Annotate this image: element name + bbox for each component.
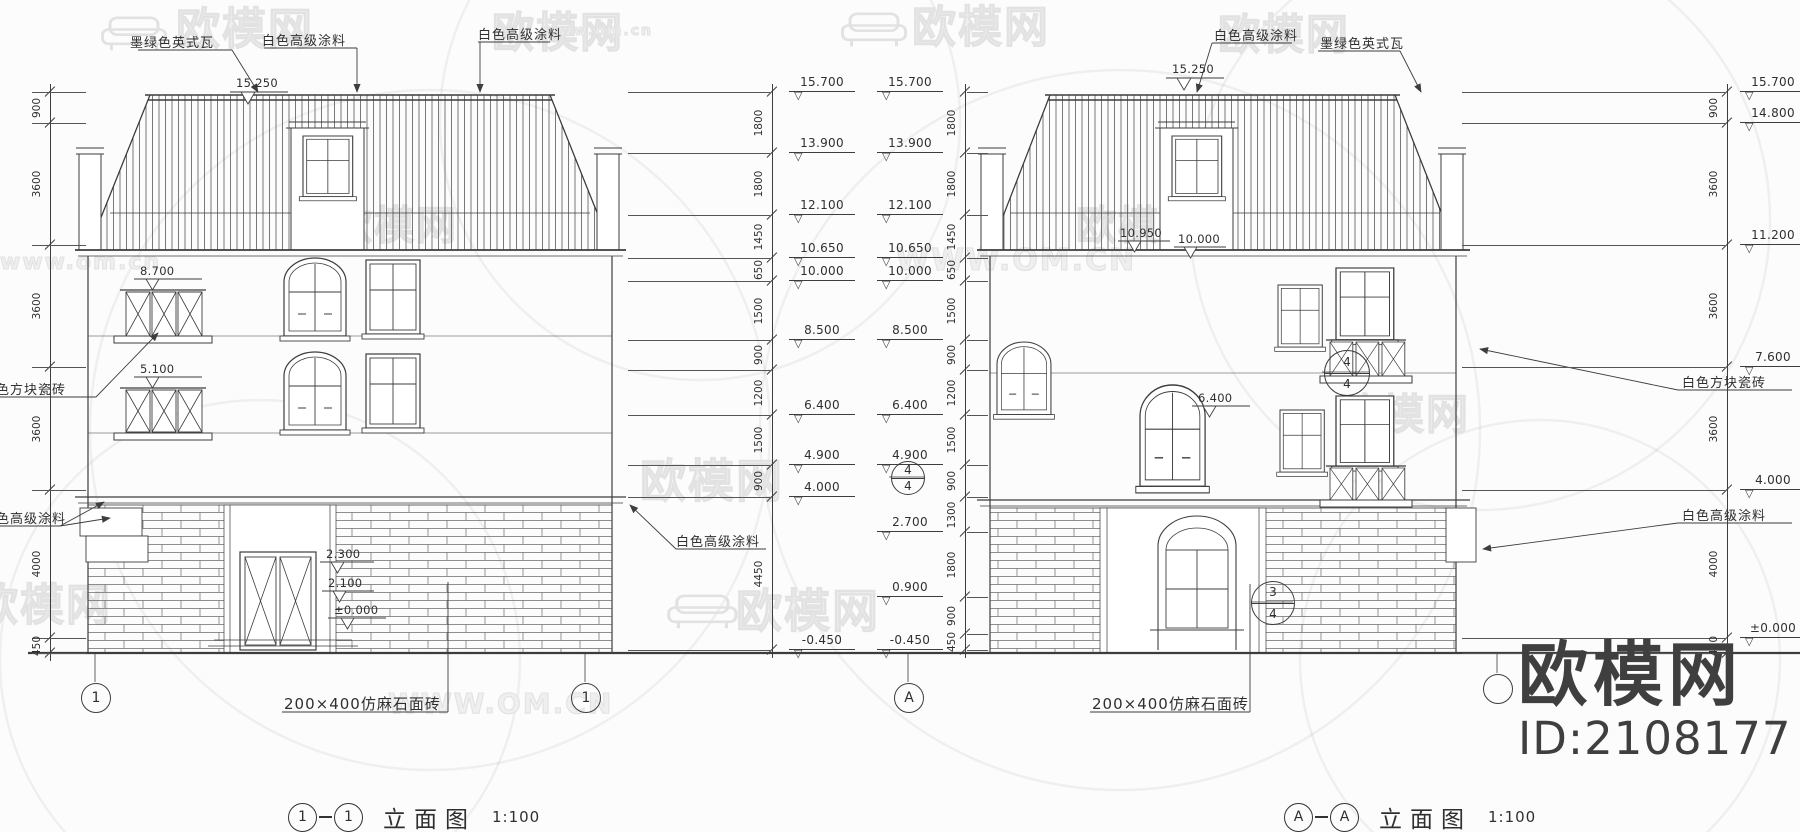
caption-scale: 1:100	[492, 808, 540, 826]
extension-line	[1462, 245, 1725, 246]
elevation-mark: 10.650▽	[789, 241, 855, 263]
elevation-triangle-icon: ▽	[794, 648, 802, 660]
elevation-value: 12.100	[789, 198, 855, 212]
extension-line	[967, 465, 988, 466]
elevation-triangle-icon: ▽	[882, 595, 890, 607]
dim-segment-value: 1800	[944, 164, 960, 204]
elevation-value: 10.000	[789, 264, 855, 278]
extension-line	[628, 415, 770, 416]
elevation-mark: 13.900▽	[789, 136, 855, 158]
elevation-value: 5.100	[140, 362, 174, 376]
elevation-value: 4.900	[877, 448, 943, 462]
elevation-mark: 10.000▽	[789, 264, 855, 286]
elevation-value: 2.300	[326, 547, 360, 561]
extension-line	[628, 281, 770, 282]
elevation-triangle-icon: ▽	[1745, 121, 1753, 133]
elevation-triangle-icon: ▽	[1745, 488, 1753, 500]
elevation-triangle-icon: ▽	[794, 338, 802, 350]
elevation-value: 4.900	[789, 448, 855, 462]
elevation-mark: 15.700▽	[877, 75, 943, 97]
elevation-value: ±0.000	[334, 603, 378, 617]
elevation-triangle-icon: ▽	[882, 530, 890, 542]
detail-bubble-3-4: 34	[1251, 581, 1295, 625]
elevation-value: 15.700	[789, 75, 855, 89]
label-wall-tile-right: 白色方块瓷砖	[1682, 372, 1766, 391]
elevation-value: 6.400	[1198, 391, 1232, 405]
grid-bubble-1: 1	[81, 683, 111, 713]
dim-segment-value: 1800	[944, 103, 960, 143]
elevation-triangle-icon: ▽	[882, 338, 890, 350]
extension-line	[967, 415, 988, 416]
dim-segment-value: 4450	[751, 554, 767, 594]
extension-line	[32, 490, 86, 491]
dim-segment-value: 1300	[944, 495, 960, 535]
extension-line	[628, 92, 770, 93]
peak-elevation-right: 15.250	[1172, 62, 1214, 76]
elevation-mark: 12.100▽	[789, 198, 855, 220]
label-base-tile-left: 200×400仿麻石面砖	[284, 693, 441, 714]
elevation-value: 14.800	[1740, 106, 1800, 120]
dim-segment-value: 1500	[751, 420, 767, 460]
dim-segment-value: 4000	[1706, 544, 1722, 584]
elevation-value: 6.400	[789, 398, 855, 412]
extension-line	[967, 650, 988, 651]
grid-bubble	[1483, 674, 1513, 704]
label-paint-left-mid: 白色高级涂料	[262, 30, 346, 49]
dim-segment-value: 1500	[944, 420, 960, 460]
site-logo-text: 欧模网	[1518, 640, 1792, 710]
caption-grid-bubble: A	[1330, 803, 1359, 832]
detail-bubble-4-4: 44	[891, 461, 925, 495]
elevation-mark: 14.800▽	[1740, 106, 1800, 128]
label-paint-left-base: 白色高级涂料	[676, 531, 760, 550]
drawing-id: ID:2108177	[1518, 716, 1792, 761]
elevation-mark: 4.000▽	[1740, 473, 1800, 495]
dim-segment-value: 900	[29, 88, 45, 128]
label-roof-tile-right: 墨绿色英式瓦	[1320, 33, 1404, 52]
dim-segment-value: 3600	[1706, 409, 1722, 449]
elevation-mark: 15.700▽	[789, 75, 855, 97]
extension-line	[1462, 367, 1725, 368]
caption-grid-bubble: 1	[288, 803, 317, 832]
elevation-mark: 8.500▽	[877, 323, 943, 345]
elevation-value: 10.000	[877, 264, 943, 278]
extension-line	[967, 340, 988, 341]
elevation-value: 15.700	[1740, 75, 1800, 89]
elevation-triangle-icon: ▽	[794, 90, 802, 102]
elevation-mark: -0.450▽	[877, 633, 943, 655]
elevation-value: 4.000	[1740, 473, 1800, 487]
elevation-value: -0.450	[789, 633, 855, 647]
elevation-triangle-icon: ▽	[794, 463, 802, 475]
dim-segment-value: 900	[944, 335, 960, 375]
elevation-value: 8.700	[140, 264, 174, 278]
dim-segment-value: 450	[29, 626, 45, 666]
elevation-mark: 13.900▽	[877, 136, 943, 158]
elevation-triangle-icon: ▽	[1745, 243, 1753, 255]
caption-left: 1 1 立面图 1:100	[288, 800, 540, 832]
extension-line	[967, 370, 988, 371]
elevation-mark: 4.900▽	[789, 448, 855, 470]
extension-line	[628, 465, 770, 466]
dim-line	[772, 84, 773, 658]
elevation-value: 10.650	[789, 241, 855, 255]
elevation-mark: -0.450▽	[789, 633, 855, 655]
elevation-value: 8.500	[877, 323, 943, 337]
elevation-mark: 7.600▽	[1740, 350, 1800, 372]
dim-segment-value: 1200	[751, 373, 767, 413]
detail-bubble-4-4: 44	[1324, 350, 1370, 396]
extension-line	[967, 634, 988, 635]
site-logo: 欧模网 ID:2108177	[1518, 640, 1792, 761]
caption-grid-bubble: 1	[334, 803, 363, 832]
extension-line	[967, 92, 988, 93]
peak-elevation-left: 15.250	[236, 76, 278, 90]
extension-line	[628, 370, 770, 371]
dim-segment-value: 1500	[751, 291, 767, 331]
dim-segment-value: 650	[751, 250, 767, 290]
label-paint-left-low: 白色高级涂料	[0, 508, 66, 527]
elevation-value: 7.600	[1740, 350, 1800, 364]
dim-segment-value: 3600	[29, 409, 45, 449]
elevation-value: ±0.000	[1740, 621, 1800, 635]
elevation-value: 11.200	[1740, 228, 1800, 242]
extension-line	[628, 258, 770, 259]
drawing-sheet: 欧模网 欧模网 欧模网 欧模网 欧模网 欧模网 欧模网 欧模网 欧模网 欧模网 …	[0, 0, 1800, 832]
label-paint-right-low: 白色高级涂料	[1682, 505, 1766, 524]
dim-segment-value: 3600	[29, 286, 45, 326]
extension-line	[32, 367, 86, 368]
caption-dash	[1315, 816, 1328, 818]
extension-line	[967, 153, 988, 154]
dim-segment-value: 900	[1706, 88, 1722, 128]
dim-line	[965, 84, 966, 658]
caption-grid-bubble: A	[1284, 803, 1313, 832]
elevation-mark: 10.650▽	[877, 241, 943, 263]
elevation-triangle-icon: ▽	[794, 413, 802, 425]
elevation-mark: 6.400▽	[877, 398, 943, 420]
elevation-mark: 12.100▽	[877, 198, 943, 220]
elevation-value: 0.900	[877, 580, 943, 594]
dim-segment-value: 4000	[29, 544, 45, 584]
label-base-tile-right: 200×400仿麻石面砖	[1092, 693, 1249, 714]
elevation-value: 13.900	[877, 136, 943, 150]
dim-line	[50, 84, 51, 661]
elevation-triangle-icon: ▽	[794, 213, 802, 225]
grid-bubble-a: A	[894, 683, 924, 713]
extension-line	[628, 497, 770, 498]
caption-title: 立面图	[1379, 800, 1472, 832]
dim-segment-value: 1800	[751, 103, 767, 143]
elevation-mark: 4.000▽	[789, 480, 855, 502]
extension-line	[967, 215, 988, 216]
caption-title: 立面图	[383, 800, 476, 832]
dim-segment-value: 1800	[751, 164, 767, 204]
dim-segment-value: 1800	[944, 545, 960, 585]
label-wall-tile-left: 白色方块瓷砖	[0, 379, 66, 398]
elevation-value: 10.000	[1178, 232, 1220, 246]
elevation-triangle-icon: ▽	[882, 648, 890, 660]
extension-line	[628, 215, 770, 216]
elevation-value: 2.700	[877, 515, 943, 529]
elevation-triangle-icon: ▽	[794, 151, 802, 163]
dim-segment-value: 3600	[29, 164, 45, 204]
elevation-value: 10.650	[877, 241, 943, 255]
extension-line	[967, 597, 988, 598]
elevation-mark: 11.200▽	[1740, 228, 1800, 250]
extension-line	[32, 245, 86, 246]
caption-dash	[319, 816, 332, 818]
elevation-triangle-icon: ▽	[794, 279, 802, 291]
dim-segment-value: 450	[944, 622, 960, 662]
dim-segment-value: 650	[944, 250, 960, 290]
extension-line	[967, 281, 988, 282]
elevation-value: 13.900	[789, 136, 855, 150]
grid-bubble-1: 1	[571, 683, 601, 713]
extension-line	[967, 497, 988, 498]
elevation-value: 2.100	[328, 576, 362, 590]
dim-segment-value: 1500	[944, 291, 960, 331]
elevation-mark: 6.400▽	[789, 398, 855, 420]
dim-segment-value: 900	[751, 461, 767, 501]
extension-line	[628, 153, 770, 154]
elevation-mark: 8.500▽	[789, 323, 855, 345]
dim-segment-value: 1200	[944, 373, 960, 413]
extension-line	[967, 258, 988, 259]
dim-segment-value: 900	[751, 335, 767, 375]
elevation-value: 8.500	[789, 323, 855, 337]
elevation-triangle-icon: ▽	[882, 279, 890, 291]
caption-scale: 1:100	[1488, 808, 1536, 826]
extension-line	[628, 650, 770, 651]
elevation-mark: 0.900▽	[877, 580, 943, 602]
elevation-value: 12.100	[877, 198, 943, 212]
label-roof-tile-left: 墨绿色英式瓦	[130, 32, 214, 51]
elevation-value: 4.000	[789, 480, 855, 494]
dim-segment-value: 3600	[1706, 164, 1722, 204]
elevation-triangle-icon: ▽	[882, 90, 890, 102]
elevation-triangle-icon: ▽	[1745, 90, 1753, 102]
extension-line	[967, 532, 988, 533]
dim-segment-value: 3600	[1706, 286, 1722, 326]
label-paint-right-top: 白色高级涂料	[1214, 25, 1298, 44]
elevation-triangle-icon: ▽	[882, 151, 890, 163]
elevation-triangle-icon: ▽	[794, 495, 802, 507]
elevation-value: 6.400	[877, 398, 943, 412]
elevation-triangle-icon: ▽	[882, 213, 890, 225]
elevation-triangle-icon: ▽	[882, 463, 890, 475]
extension-line	[1462, 123, 1725, 124]
elevation-value: -0.450	[877, 633, 943, 647]
elevation-mark: 10.000▽	[877, 264, 943, 286]
elevation-value: 15.700	[877, 75, 943, 89]
extension-line	[1462, 490, 1725, 491]
elevation-value: 10.950	[1120, 226, 1162, 240]
elevation-triangle-icon: ▽	[882, 413, 890, 425]
extension-line	[1462, 92, 1725, 93]
elevation-mark: 2.700▽	[877, 515, 943, 537]
extension-line	[628, 340, 770, 341]
caption-right: A A 立面图 1:100	[1284, 800, 1536, 832]
elevation-mark: 15.700▽	[1740, 75, 1800, 97]
label-paint-left-right: 白色高级涂料	[478, 24, 562, 43]
